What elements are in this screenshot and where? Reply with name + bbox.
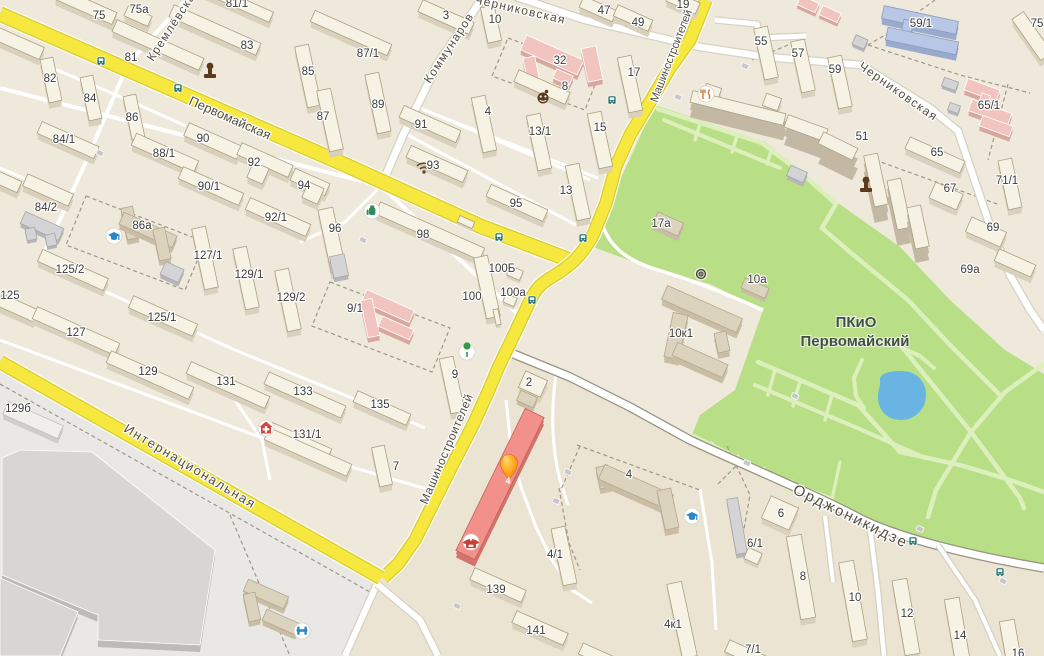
svg-text:59: 59: [829, 64, 842, 76]
svg-text:90/1: 90/1: [198, 181, 220, 193]
svg-text:7/1: 7/1: [745, 644, 761, 656]
svg-text:3: 3: [443, 10, 449, 22]
svg-text:86а: 86а: [132, 220, 152, 232]
svg-text:139: 139: [486, 584, 505, 596]
svg-text:82: 82: [44, 73, 57, 85]
svg-text:10: 10: [849, 592, 862, 604]
svg-text:10а: 10а: [747, 274, 767, 286]
svg-text:81/1: 81/1: [226, 0, 248, 10]
svg-text:32: 32: [554, 55, 567, 67]
svg-text:4: 4: [505, 476, 510, 486]
svg-text:17: 17: [628, 67, 641, 79]
svg-text:67: 67: [944, 183, 957, 195]
svg-text:100а: 100а: [500, 287, 526, 299]
svg-text:6: 6: [778, 508, 784, 520]
svg-text:129/1: 129/1: [235, 269, 264, 281]
svg-text:86: 86: [126, 112, 139, 124]
svg-text:93: 93: [427, 160, 440, 172]
svg-text:7: 7: [393, 461, 399, 473]
svg-text:125/2: 125/2: [56, 264, 85, 276]
svg-text:129б: 129б: [5, 403, 31, 415]
svg-text:92: 92: [248, 157, 261, 169]
svg-text:90: 90: [197, 133, 210, 145]
svg-text:133: 133: [293, 386, 312, 398]
svg-text:131/1: 131/1: [293, 429, 322, 441]
svg-text:4: 4: [485, 106, 492, 118]
svg-text:15: 15: [594, 122, 607, 134]
svg-text:2: 2: [526, 377, 532, 389]
svg-text:75: 75: [1031, 18, 1044, 30]
svg-text:17а: 17а: [651, 218, 671, 230]
svg-text:4/1: 4/1: [547, 549, 563, 561]
svg-text:9/1: 9/1: [347, 303, 363, 315]
svg-text:6/1: 6/1: [747, 538, 763, 550]
svg-text:127/1: 127/1: [194, 250, 223, 262]
svg-text:8: 8: [562, 81, 568, 93]
svg-text:88/1: 88/1: [153, 148, 175, 160]
svg-text:69: 69: [987, 222, 1000, 234]
svg-text:141: 141: [526, 625, 545, 637]
svg-text:55: 55: [755, 36, 768, 48]
svg-text:51: 51: [856, 131, 869, 143]
svg-text:125/1: 125/1: [148, 312, 177, 324]
svg-text:8: 8: [800, 571, 806, 583]
svg-text:10: 10: [489, 14, 502, 26]
svg-text:96: 96: [329, 223, 342, 235]
svg-text:91: 91: [415, 119, 428, 131]
svg-text:4: 4: [626, 469, 633, 481]
svg-text:95: 95: [510, 198, 523, 210]
svg-text:19: 19: [677, 0, 690, 11]
svg-text:98: 98: [417, 229, 430, 241]
svg-text:92/1: 92/1: [265, 212, 287, 224]
svg-text:131: 131: [216, 376, 235, 388]
svg-text:87: 87: [317, 111, 330, 123]
svg-text:ПКиО: ПКиО: [836, 314, 877, 331]
svg-text:84/1: 84/1: [53, 134, 75, 146]
svg-text:100Б: 100Б: [489, 263, 516, 275]
svg-text:127: 127: [66, 327, 85, 339]
svg-text:4к1: 4к1: [664, 619, 682, 631]
svg-text:75а: 75а: [129, 4, 149, 16]
svg-text:125: 125: [0, 290, 19, 302]
svg-text:65/1: 65/1: [978, 100, 1000, 112]
svg-text:10к1: 10к1: [669, 328, 693, 340]
svg-text:84: 84: [84, 93, 97, 105]
svg-text:81: 81: [125, 52, 138, 64]
svg-text:89: 89: [372, 99, 385, 111]
svg-text:84/2: 84/2: [35, 202, 57, 214]
svg-text:87/1: 87/1: [357, 48, 379, 60]
svg-text:75: 75: [93, 10, 106, 22]
svg-text:135: 135: [370, 399, 389, 411]
svg-text:16: 16: [1012, 648, 1025, 656]
svg-text:65: 65: [931, 147, 944, 159]
svg-text:Первомайский: Первомайский: [800, 333, 909, 350]
svg-text:85: 85: [302, 66, 315, 78]
svg-text:13/1: 13/1: [529, 126, 551, 138]
svg-text:129: 129: [138, 366, 157, 378]
svg-text:100: 100: [462, 291, 481, 303]
svg-text:59/1: 59/1: [910, 18, 932, 30]
svg-text:14: 14: [954, 630, 967, 642]
svg-text:49: 49: [632, 17, 645, 29]
svg-text:71/1: 71/1: [996, 175, 1018, 187]
svg-text:12: 12: [901, 608, 914, 620]
svg-text:9: 9: [452, 369, 458, 381]
svg-text:57: 57: [792, 48, 805, 60]
svg-text:69а: 69а: [960, 264, 980, 276]
svg-text:94: 94: [298, 180, 311, 192]
svg-text:129/2: 129/2: [277, 292, 306, 304]
svg-text:47: 47: [598, 5, 611, 17]
svg-text:83: 83: [241, 40, 254, 52]
svg-text:13: 13: [560, 185, 573, 197]
